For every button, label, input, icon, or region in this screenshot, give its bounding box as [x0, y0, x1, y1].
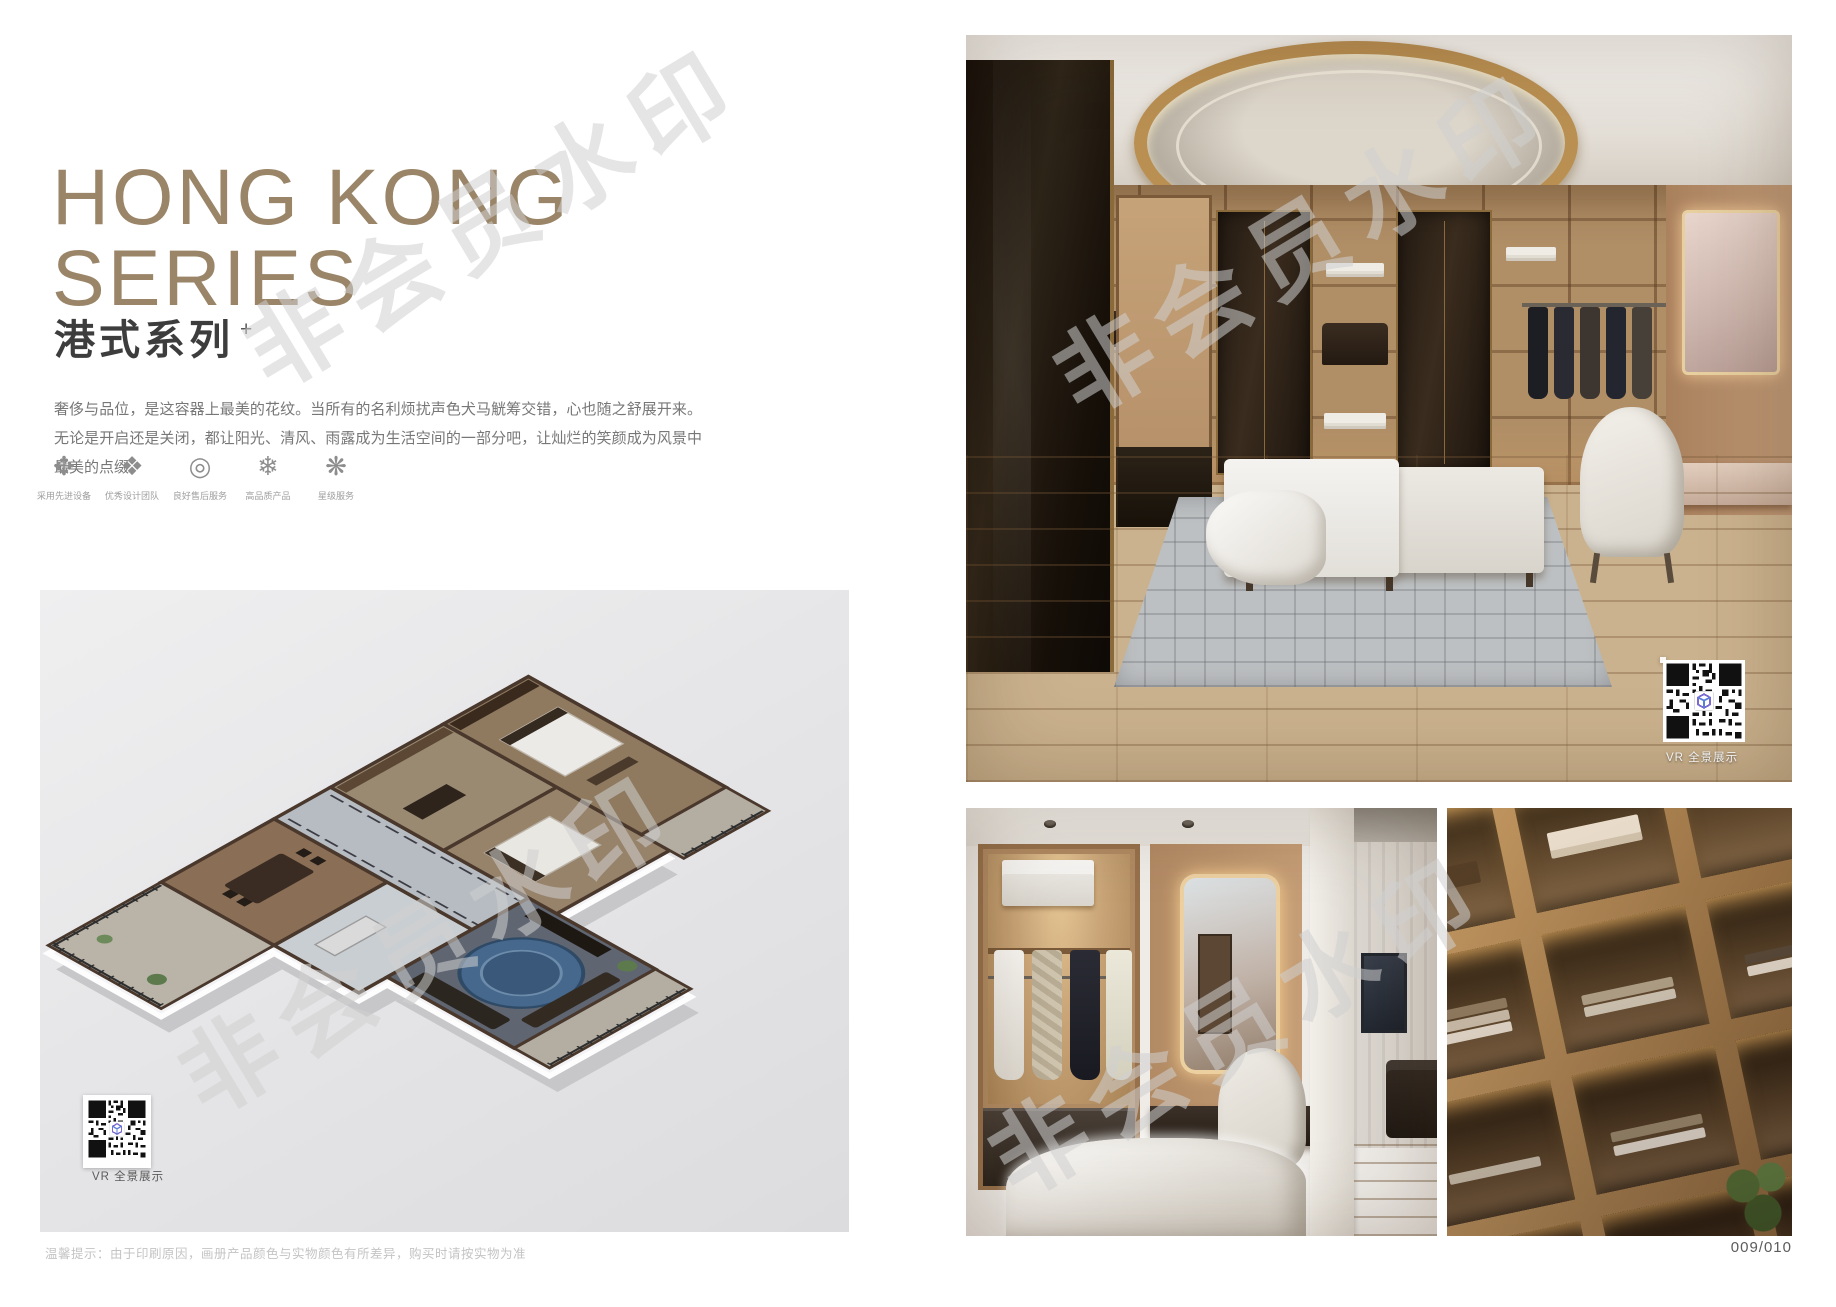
folded-stack	[1449, 1156, 1542, 1185]
series-title-line1: HONG KONG	[52, 156, 571, 237]
shelf-compartment	[1542, 904, 1710, 1054]
feature-after-sales: ◎ 良好售后服务	[166, 449, 234, 502]
draped-cloth	[1206, 490, 1326, 585]
garment-silhouette	[1528, 307, 1548, 399]
shelf-column	[1116, 195, 1212, 450]
feature-advanced-equipment: ✥ 采用先进设备	[30, 449, 98, 502]
bed-foreground	[1006, 1138, 1306, 1236]
series-title: HONG KONG SERIES	[52, 156, 571, 318]
shelf-compartment	[1735, 1010, 1792, 1160]
garment-white	[994, 950, 1024, 1080]
dark-case	[1447, 861, 1481, 902]
vr-panorama-label: VR 全景展示	[1666, 749, 1738, 765]
shelf-compartment	[1447, 808, 1516, 948]
feature-star-service: ❋ 星级服务	[302, 449, 370, 502]
bed-leg	[1386, 575, 1393, 591]
pink-flowers	[1156, 956, 1190, 1012]
wall-artwork	[1364, 956, 1404, 1030]
shelf-compartment	[1447, 1080, 1576, 1230]
floor-plan-panel: VR 全景展示	[40, 590, 849, 1232]
dark-wardrobe-cabinet	[1396, 210, 1492, 475]
dark-wardrobe-cabinet	[1216, 210, 1312, 475]
garment-silhouette	[1580, 307, 1600, 399]
downlight	[1044, 820, 1056, 828]
series-subtitle-cn: 港式系列+	[54, 306, 256, 366]
isometric-floor-plan	[40, 590, 849, 1232]
shelf-compartment	[1572, 1045, 1740, 1195]
feature-label: 星级服务	[304, 488, 369, 501]
feature-quality-product: ❄ 高品质产品	[234, 449, 302, 502]
shelf-compartment	[1447, 1221, 1606, 1236]
corridor-floor	[1354, 1144, 1437, 1236]
ornament-flower-icon: ✥	[30, 449, 98, 483]
shelf-compartment	[1676, 808, 1792, 878]
feature-icon-row: ✥ 采用先进设备 ❖ 优秀设计团队 ◎ 良好售后服务 ❄ 高品质产品 ❋ 星级服…	[30, 449, 370, 502]
bed-leg	[1526, 571, 1533, 587]
circle-ring-icon: ◎	[166, 449, 234, 483]
vr-qr-code	[83, 1095, 151, 1168]
shelf-closeup-photo	[1447, 808, 1792, 1236]
shelf-compartment	[1447, 939, 1546, 1089]
snowflake-icon: ❄	[234, 449, 302, 483]
feature-label: 优秀设计团队	[100, 488, 165, 501]
garment-patterned	[1032, 950, 1062, 1080]
feature-design-team: ❖ 优秀设计团队	[98, 449, 166, 502]
bed-bench	[1394, 467, 1544, 573]
feature-label: 良好售后服务	[168, 488, 233, 501]
ornament-diamond-icon: ❖	[98, 449, 166, 483]
downlight	[1182, 820, 1194, 828]
green-plant	[1719, 1150, 1792, 1236]
garment-navy	[1070, 950, 1100, 1080]
white-pillar	[1310, 808, 1354, 1236]
white-box	[1547, 814, 1643, 859]
white-armchair	[1580, 407, 1684, 557]
star-ornament-icon: ❋	[302, 449, 370, 483]
storage-box	[1002, 860, 1094, 906]
dressing-area-photo	[966, 808, 1437, 1236]
catalog-spread: HONG KONG SERIES 港式系列+ 奢侈与品位，是这容器上最美的花纹。…	[0, 0, 1836, 1307]
walk-in-closet-photo: VR 全景展示	[966, 35, 1792, 782]
plus-superscript: +	[240, 318, 256, 341]
garment-silhouette	[1606, 307, 1626, 399]
shelf-compartment	[1705, 870, 1792, 1020]
dark-sideboard	[1386, 1060, 1437, 1138]
vanity-mirror	[1682, 210, 1780, 375]
lit-vanity-mirror	[1180, 874, 1280, 1074]
page-number: 009/010	[1700, 1239, 1792, 1256]
vr-panorama-label: VR 全景展示	[92, 1168, 164, 1184]
shelf-compartment	[1512, 808, 1680, 913]
garment-cream	[1106, 950, 1132, 1080]
feature-label: 采用先进设备	[32, 488, 97, 501]
vr-qr-code	[1660, 657, 1666, 663]
footer-disclaimer: 温馨提示：由于印刷原因，画册产品颜色与实物颜色有所差异，购买时请按实物为准	[45, 1243, 526, 1262]
garment-silhouette	[1632, 307, 1652, 399]
garment-silhouette	[1554, 307, 1574, 399]
corridor-ceiling	[1354, 808, 1437, 842]
feature-label: 高品质产品	[236, 488, 301, 501]
